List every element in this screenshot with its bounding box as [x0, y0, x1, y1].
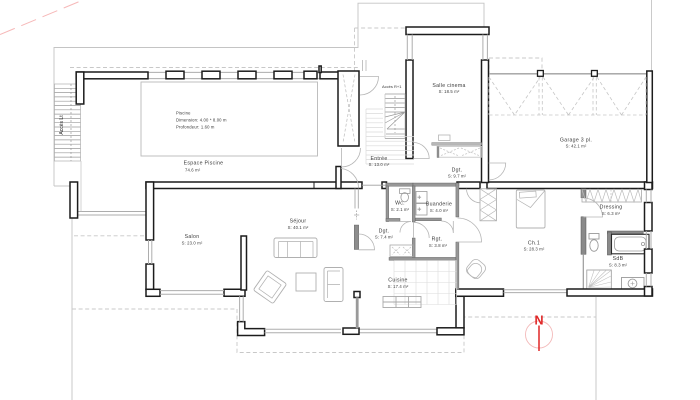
- svg-text:Profondeur: 1.60 m: Profondeur: 1.60 m: [176, 125, 215, 130]
- svg-text:Rgt.: Rgt.: [432, 237, 443, 243]
- svg-text:N: N: [534, 314, 543, 328]
- svg-text:Buanderie: Buanderie: [426, 202, 452, 208]
- svg-text:Espace Piscine: Espace Piscine: [184, 161, 224, 167]
- svg-text:S: 3.8 m²: S: 3.8 m²: [429, 243, 448, 248]
- svg-text:S: 42.1 m²: S: 42.1 m²: [566, 143, 587, 148]
- svg-text:S: 8.3 m²: S: 8.3 m²: [609, 263, 628, 268]
- svg-text:Séjour: Séjour: [290, 219, 307, 225]
- svg-text:S: 4.0 m²: S: 4.0 m²: [430, 208, 449, 213]
- svg-text:S: 23.0 m²: S: 23.0 m²: [182, 240, 203, 245]
- svg-text:Cuisine: Cuisine: [388, 278, 407, 284]
- svg-text:SdB: SdB: [613, 256, 624, 262]
- svg-text:S: 28.3 m²: S: 28.3 m²: [524, 247, 545, 252]
- svg-text:Piscine: Piscine: [176, 111, 191, 116]
- svg-text:S: 17.4 m²: S: 17.4 m²: [388, 284, 409, 289]
- svg-text:S: 40.1 m²: S: 40.1 m²: [288, 225, 309, 230]
- svg-text:Dimension: 4.00 * 8.00 m: Dimension: 4.00 * 8.00 m: [176, 118, 227, 123]
- svg-text:S: 2.1 m²: S: 2.1 m²: [391, 207, 410, 212]
- svg-text:74.6 m²: 74.6 m²: [185, 168, 201, 173]
- svg-text:S: 7.4 m²: S: 7.4 m²: [375, 235, 394, 240]
- svg-text:S: 18.5 m²: S: 18.5 m²: [439, 89, 460, 94]
- svg-text:Dressing: Dressing: [600, 205, 623, 211]
- svg-text:Wc.: Wc.: [395, 201, 405, 207]
- svg-text:S: 9.7 m²: S: 9.7 m²: [448, 174, 467, 179]
- svg-text:S: 13.0 m²: S: 13.0 m²: [369, 162, 390, 167]
- svg-text:Accès Lt: Accès Lt: [59, 115, 65, 135]
- svg-text:Salon: Salon: [185, 234, 200, 240]
- svg-text:Accès R+1: Accès R+1: [382, 84, 402, 89]
- svg-text:S: 6.3 m²: S: 6.3 m²: [602, 211, 621, 216]
